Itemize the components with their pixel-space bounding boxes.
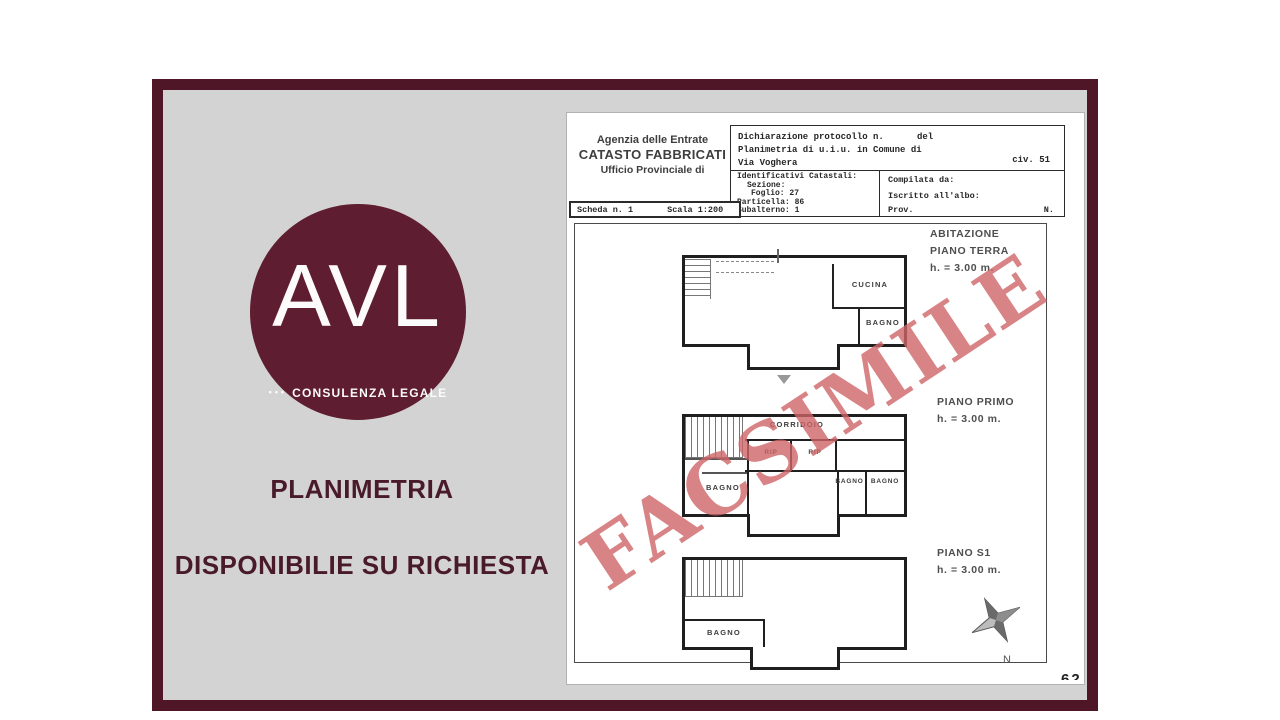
subalterno-field: Subalterno: 1 [737,207,879,216]
caption-line: PIANO S1 [937,545,1001,562]
room-label-bagno-left: BAGNO [697,483,749,492]
caption-line: ABITAZIONE [930,226,1009,243]
floor-plan-area: CUCINA BAGNO CORRIDOIO RIP [574,223,1047,663]
n-label: N. [1044,205,1054,215]
door-swing-icon [777,375,791,384]
planimetria-line: Planimetria di u.i.u. in Comune di [738,144,1057,157]
scheda-label: Scheda n. 1 [577,205,633,215]
declaration-header: Dichiarazione protocollo n. del Planimet… [731,126,1064,171]
room-label-rip1: RIP [751,449,791,456]
room-label-bagno: BAGNO [861,318,905,327]
caption-line: PIANO TERRA [930,243,1009,260]
floor-plan-first: CORRIDOIO RIP RIP BAGNO BAGNO BAGNO [682,414,907,517]
caption-height: h. = 3.00 m. [937,562,1001,579]
iscritto-label: Iscritto all'albo: [888,191,980,201]
wall [747,439,749,514]
wall [835,441,837,470]
stair-dashes [716,261,774,273]
planimetria-title: PLANIMETRIA [270,474,453,505]
plan-notch [750,647,840,670]
stairs-icon [685,560,743,597]
del-label: del [917,131,933,144]
room-label-corridoio: CORRIDOIO [752,420,842,429]
caption-height: h. = 3.00 m. [937,411,1014,428]
protocol-label: Dichiarazione protocollo n. [738,132,884,142]
caption-line: PIANO PRIMO [937,394,1014,411]
logo-acronym: AVL [250,252,466,340]
street-line: Via Voghera [738,157,1057,170]
wall [685,458,747,460]
compass-rose: N [967,596,1037,670]
floor-caption-ground: ABITAZIONE PIANO TERRA h. = 3.00 m. [930,226,1009,277]
room-label-cucina: CUCINA [840,280,900,289]
room-label-bagno-s1: BAGNO [693,628,755,637]
compass-star-icon [967,596,1025,648]
wall [702,472,747,474]
room-label-bagno-right2: BAGNO [867,478,903,485]
wall [763,619,765,647]
compilata-label: Compilata da: [888,175,954,185]
plan-notch [747,344,840,370]
stairs-icon [685,417,743,458]
logo-tagline-text: CONSULENZA LEGALE [292,386,447,400]
cadastral-identifiers: Identificativi Catastali: Sezione: Fogli… [731,171,880,216]
agency-header: Agenzia delle Entrate CATASTO FABBRICATI… [575,133,730,177]
wall-tick [777,249,779,263]
compiler-box: Compilata da: Iscritto all'albo: Prov. N… [880,171,1064,216]
wall [745,439,904,441]
availability-note: DISPONIBILIE SU RICHIESTA [175,550,550,581]
cadastral-document-page: Agenzia delle Entrate CATASTO FABBRICATI… [566,112,1085,685]
floor-caption-first: PIANO PRIMO h. = 3.00 m. [937,394,1014,428]
wall [745,470,904,472]
compass-north-label: N [1003,654,1011,666]
room-label-bagno-right1: BAGNO [834,478,865,485]
civ-number: civ. 51 [1012,154,1050,167]
floor-caption-s1: PIANO S1 h. = 3.00 m. [937,545,1001,579]
plan-notch [747,514,840,537]
caption-height: h. = 3.00 m. [930,260,1009,277]
declaration-table: Dichiarazione protocollo n. del Planimet… [730,125,1065,217]
scala-label: Scala 1:200 [667,205,723,215]
page-number-fragment: 62 [1061,671,1082,680]
agency-line1: Agenzia delle Entrate [575,133,730,147]
prov-label: Prov. [888,205,914,215]
scheda-box: Scheda n. 1 Scala 1:200 [569,201,741,218]
floor-plan-ground: CUCINA BAGNO [682,255,907,347]
logo-tagline: •••CONSULENZA LEGALE [250,386,466,400]
stairs-icon [685,259,711,299]
wall [858,309,860,344]
agency-line3: Ufficio Provinciale di [575,163,730,177]
room-label-rip2: RIP [795,449,835,456]
maroon-photo-frame: AVL •••CONSULENZA LEGALE PLANIMETRIA DIS… [152,79,1098,711]
wall [685,619,765,621]
declaration-body: Identificativi Catastali: Sezione: Fogli… [731,171,1064,216]
floor-plan-s1: BAGNO [682,557,907,650]
room-cucina: CUCINA [832,264,904,309]
logo-dots-icon: ••• [269,387,287,397]
protocol-line: Dichiarazione protocollo n. del [738,131,1057,144]
avl-logo: AVL •••CONSULENZA LEGALE [250,204,466,420]
agency-line2: CATASTO FABBRICATI [575,147,730,163]
